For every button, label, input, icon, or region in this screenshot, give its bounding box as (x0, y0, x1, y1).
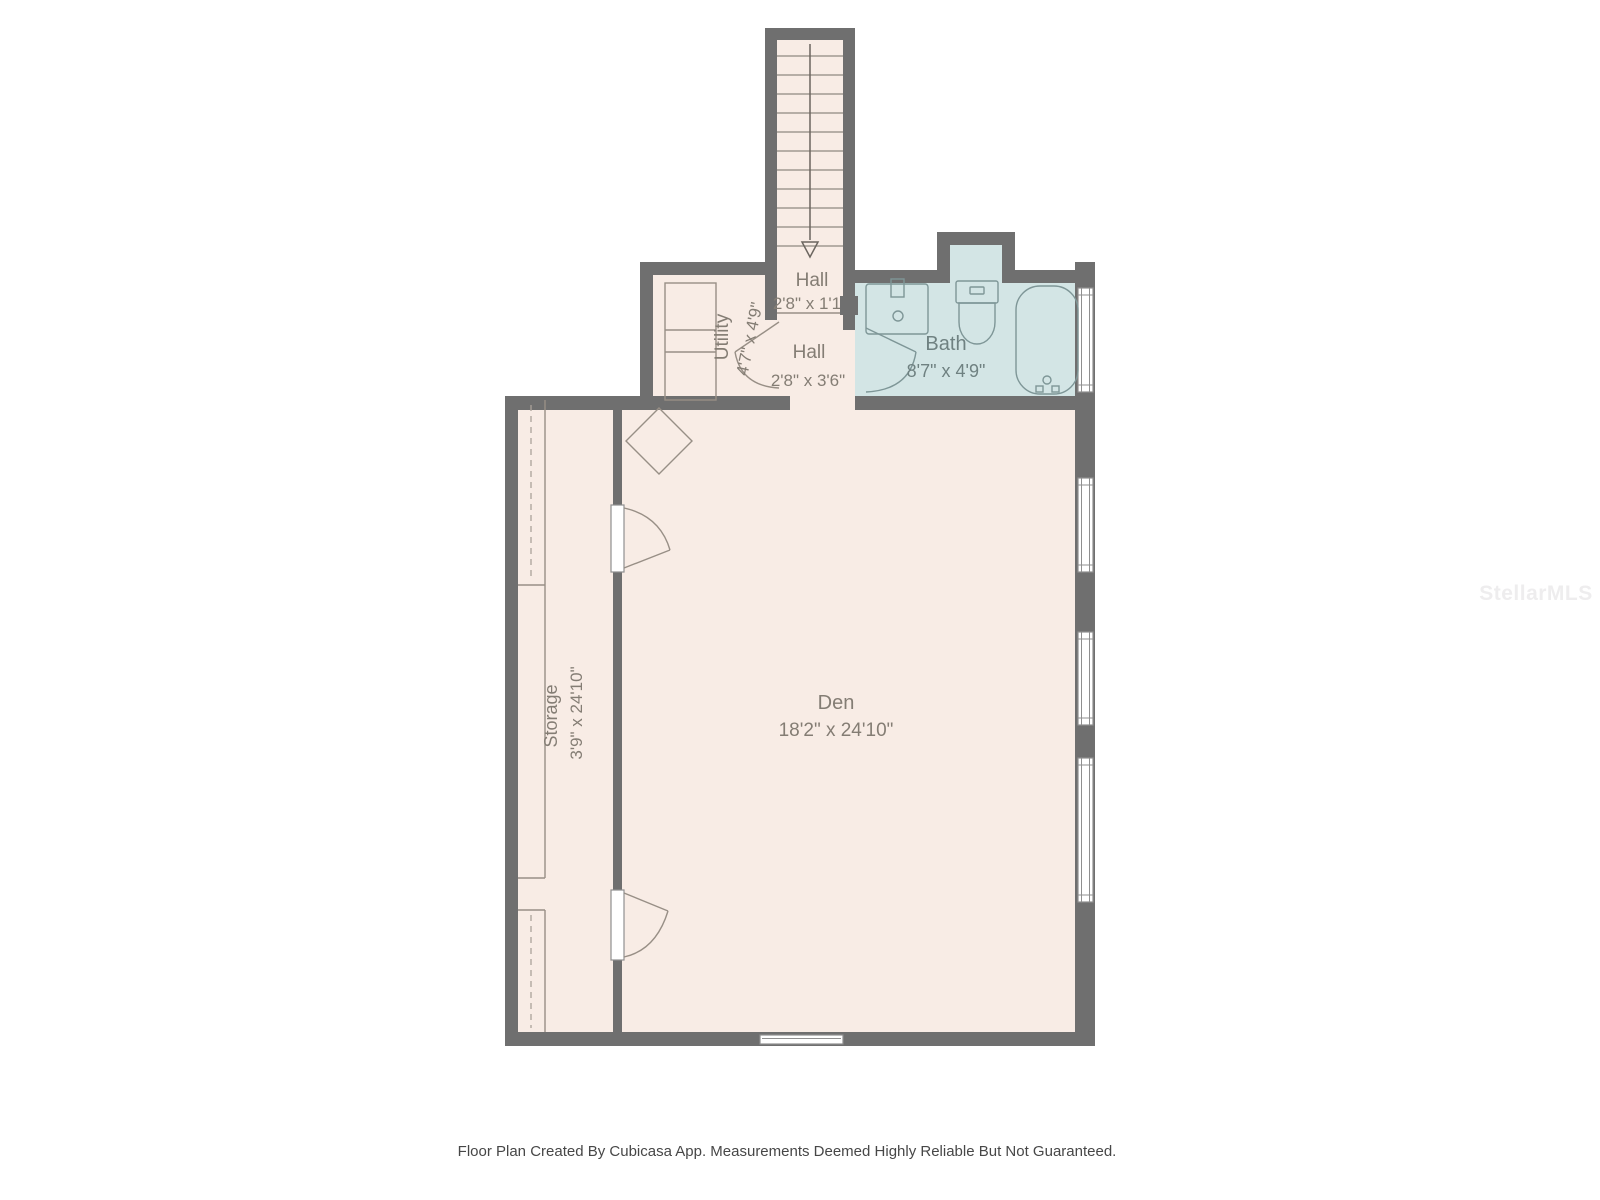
den-top-wall-left (505, 396, 790, 410)
bath-window (1078, 288, 1093, 392)
hall-lower-dims: 2'8" x 3'6" (771, 371, 845, 390)
bath-label: Bath (925, 333, 966, 355)
den-dims: 18'2" x 24'10" (779, 720, 894, 741)
bath-top-wall-left (855, 270, 937, 283)
utility-left-wall (640, 262, 653, 410)
den-window-1 (1078, 478, 1093, 572)
den-window-2 (1078, 632, 1093, 725)
utility-top-wall (640, 262, 777, 275)
stair-top-wall (765, 28, 855, 40)
storage-dims: 3'9" x 24'10" (567, 666, 586, 759)
hall-upper-label: Hall (796, 270, 829, 291)
stellar-mls-watermark: StellarMLS (1479, 582, 1593, 605)
stair-left-wall (765, 28, 777, 320)
utility-label: Utility (712, 313, 733, 360)
storage-wall-seg3 (613, 958, 622, 1032)
hall-wall-stub (840, 296, 858, 315)
floor-plan-drawing: Hall 2'8" x 1'1" Hall 2'8" x 3'6" Utilit… (0, 0, 1600, 1200)
hall-upper-dims: 2'8" x 1'1" (773, 294, 847, 313)
den-window-3 (1078, 758, 1093, 902)
storage-label: Storage (541, 684, 561, 747)
bath-niche-floor (950, 245, 1002, 283)
bottom-door-threshold (760, 1035, 843, 1044)
den-label: Den (818, 692, 855, 714)
stair-right-wall (843, 28, 855, 330)
hall-lower-label: Hall (793, 342, 826, 363)
niche-right-wall (1002, 232, 1015, 283)
left-outer-wall (505, 396, 518, 1046)
den-top-wall-right (855, 396, 1095, 410)
bath-dims: 8'7" x 4'9" (907, 361, 986, 381)
floor-plan-page: Hall 2'8" x 1'1" Hall 2'8" x 3'6" Utilit… (0, 0, 1600, 1200)
footer-disclaimer: Floor Plan Created By Cubicasa App. Meas… (458, 1143, 1117, 1160)
storage-wall-seg2 (613, 570, 622, 892)
storage-wall-seg1 (613, 410, 622, 507)
